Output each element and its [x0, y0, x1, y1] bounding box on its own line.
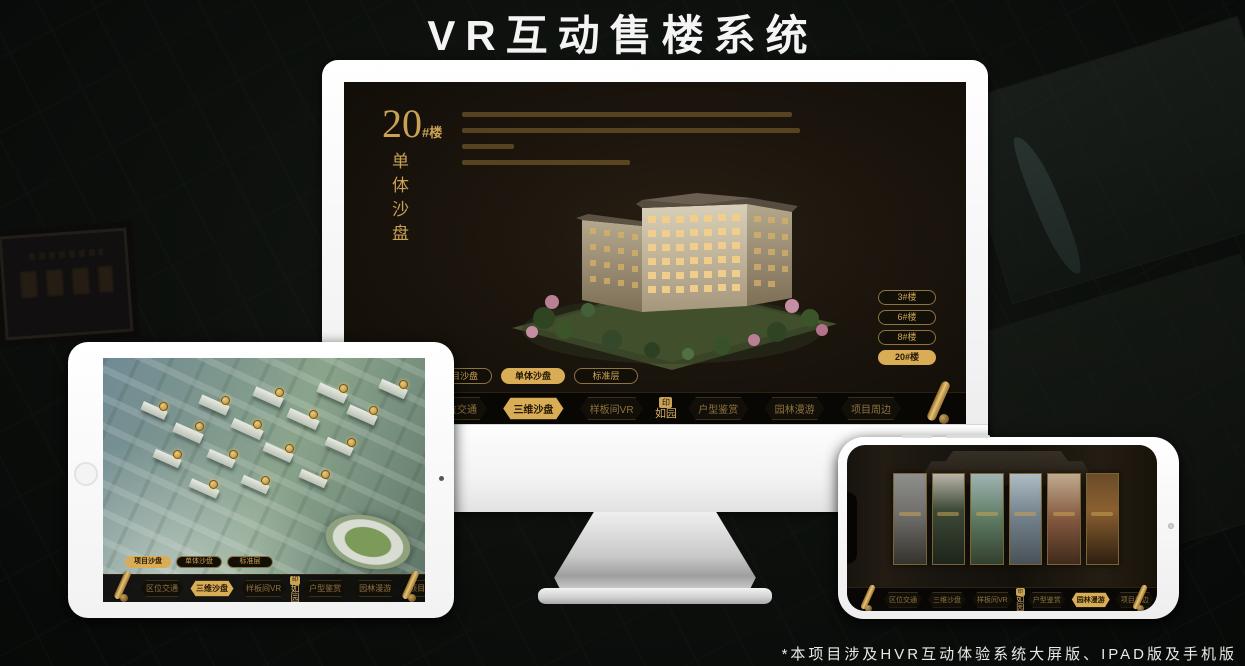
- page-title: VR互动售楼系统: [0, 2, 1245, 63]
- monitor-stand-base: [538, 588, 772, 604]
- scroll-menu-icon[interactable]: [857, 584, 873, 610]
- building-badge[interactable]: [159, 402, 168, 411]
- tablet-device: 项目沙盘 单体沙盘 标准层 区位交通 三维沙盘 样板间VR 印 如园 户型鉴赏 …: [68, 342, 454, 618]
- panorama-gallery: [893, 473, 1119, 565]
- phone-screen: 区位交通 三维沙盘 样板间VR 印 如园 户型鉴赏 园林漫游 项目周边: [847, 445, 1157, 611]
- poster-stage: VR互动售楼系统 20#楼 单体沙盘: [0, 0, 1245, 666]
- tablet-camera-dot: [439, 476, 444, 481]
- building-badge[interactable]: [209, 480, 218, 489]
- floor-button-3[interactable]: 3#楼: [878, 290, 936, 305]
- sandtable-tabs: 项目沙盘 单体沙盘 标准层: [428, 368, 638, 384]
- nav-item-showroom-vr[interactable]: 样板间VR: [969, 592, 1016, 608]
- building-badge[interactable]: [369, 406, 378, 415]
- nav-item-garden-tour[interactable]: 园林漫游: [1069, 592, 1113, 608]
- tab-standard-floor[interactable]: 标准层: [574, 368, 638, 384]
- building-badge[interactable]: [399, 380, 408, 389]
- floor-button-6[interactable]: 6#楼: [878, 310, 936, 325]
- building-badge[interactable]: [321, 470, 330, 479]
- gallery-panel-building[interactable]: [1009, 473, 1043, 565]
- nav-item-unit-plans[interactable]: 户型鉴赏: [1025, 592, 1069, 608]
- building-badge[interactable]: [347, 438, 356, 447]
- nav-item-surroundings[interactable]: 项目周边: [836, 397, 906, 420]
- tab-project-sandtable[interactable]: 项目沙盘: [125, 556, 171, 568]
- building-badge[interactable]: [309, 410, 318, 419]
- phone-power-button[interactable]: [946, 435, 990, 438]
- building-badge[interactable]: [261, 476, 270, 485]
- text-line: [462, 112, 792, 117]
- nav-item-garden-tour[interactable]: 园林漫游: [760, 397, 830, 420]
- building-badge[interactable]: [285, 444, 294, 453]
- building-badge[interactable]: [195, 422, 204, 431]
- gallery-panel-landscape[interactable]: [970, 473, 1004, 565]
- building-badge[interactable]: [229, 450, 238, 459]
- footnote: *本项目涉及HVR互动体验系统大屏版、IPAD版及手机版: [782, 643, 1237, 664]
- nav-item-unit-plans[interactable]: 户型鉴赏: [683, 397, 753, 420]
- building-badge[interactable]: [173, 450, 182, 459]
- brand-name: 如园: [1016, 595, 1024, 611]
- phone-camera-dot: [1168, 523, 1174, 529]
- nav-item-unit-plans[interactable]: 户型鉴赏: [300, 580, 350, 597]
- brand-logo: 印 如园: [290, 574, 300, 602]
- tablet-sandtable-tabs: 项目沙盘 单体沙盘 标准层: [125, 556, 273, 568]
- scroll-menu-icon[interactable]: [1129, 584, 1145, 610]
- phone-bottom-nav: 区位交通 三维沙盘 样板间VR 印 如园 户型鉴赏 园林漫游 项目周边: [847, 587, 1157, 611]
- scroll-menu-icon[interactable]: [399, 570, 417, 600]
- floor-button-8[interactable]: 8#楼: [878, 330, 936, 345]
- text-line: [462, 128, 800, 133]
- tab-single-sandtable[interactable]: 单体沙盘: [176, 556, 222, 568]
- floor-selector: 3#楼 6#楼 8#楼 20#楼: [878, 290, 936, 365]
- scroll-menu-icon[interactable]: [111, 570, 129, 600]
- nav-item-showroom-vr[interactable]: 样板间VR: [575, 397, 649, 420]
- monitor-stand: [475, 512, 835, 592]
- building-badge[interactable]: [275, 388, 284, 397]
- building-badge[interactable]: [253, 420, 262, 429]
- brand-name: 如园: [291, 584, 300, 602]
- gallery-panel-entrance[interactable]: [1047, 473, 1081, 565]
- nav-item-garden-tour[interactable]: 园林漫游: [350, 580, 400, 597]
- gallery-panel-garden[interactable]: [932, 473, 966, 565]
- tablet-home-button[interactable]: [74, 462, 98, 486]
- background-calligraphy-plaque: [0, 228, 133, 341]
- phone-device: 区位交通 三维沙盘 样板间VR 印 如园 户型鉴赏 园林漫游 项目周边: [838, 437, 1179, 619]
- scroll-menu-icon[interactable]: [926, 380, 952, 422]
- tab-single-sandtable[interactable]: 单体沙盘: [501, 368, 565, 384]
- phone-notch: [847, 492, 857, 564]
- building-3d-render[interactable]: [492, 160, 852, 386]
- nav-item-3d-sandtable[interactable]: 三维沙盘: [925, 592, 969, 608]
- building-badge[interactable]: [339, 384, 348, 393]
- nav-item-location[interactable]: 区位交通: [881, 592, 925, 608]
- building-badge[interactable]: [221, 396, 230, 405]
- phone-volume-button[interactable]: [902, 435, 932, 438]
- nav-item-3d-sandtable[interactable]: 三维沙盘: [187, 580, 237, 597]
- tablet-screen: 项目沙盘 单体沙盘 标准层 区位交通 三维沙盘 样板间VR 印 如园 户型鉴赏 …: [103, 358, 425, 602]
- tablet-bottom-nav: 区位交通 三维沙盘 样板间VR 印 如园 户型鉴赏 园林漫游 项目周边: [103, 574, 425, 602]
- nav-item-location[interactable]: 区位交通: [137, 580, 187, 597]
- nav-item-showroom-vr[interactable]: 样板间VR: [237, 580, 290, 597]
- seal-icon: 印: [659, 397, 672, 408]
- gallery-panel-courtyard[interactable]: [893, 473, 927, 565]
- text-line: [462, 144, 514, 149]
- brand-name: 如园: [655, 408, 677, 420]
- floor-subtitle-vertical: 单体沙盘: [386, 152, 411, 272]
- floor-button-20[interactable]: 20#楼: [878, 350, 936, 365]
- floor-number: 20: [382, 101, 422, 146]
- nav-item-3d-sandtable[interactable]: 三维沙盘: [498, 397, 568, 420]
- brand-logo: 印 如园: [1016, 587, 1025, 611]
- floor-heading: 20#楼 单体沙盘: [382, 104, 442, 272]
- floor-suffix: #楼: [422, 125, 442, 140]
- tab-standard-floor[interactable]: 标准层: [227, 556, 273, 568]
- gallery-panel-interior[interactable]: [1086, 473, 1120, 565]
- brand-logo: 印 如园: [655, 397, 677, 420]
